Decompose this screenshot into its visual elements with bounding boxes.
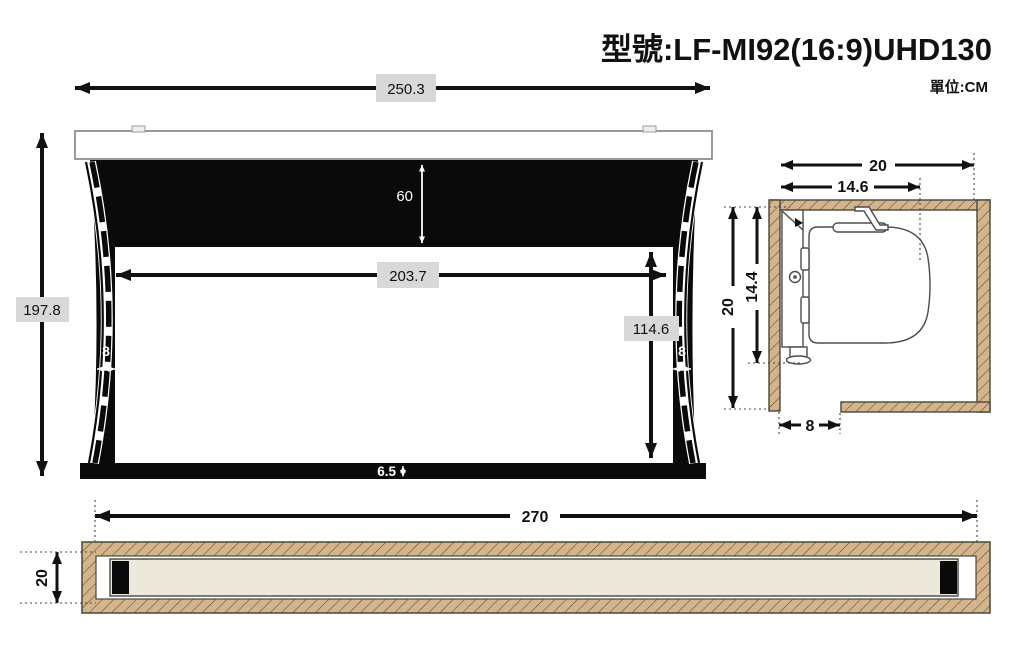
dim-total-width: 250.3: [75, 74, 710, 102]
dim-opening-width-label: 8: [806, 418, 815, 435]
dim-viewing-height-label: 114.6: [633, 321, 669, 338]
recess-wall-right: [977, 200, 990, 412]
mount-tab-left: [132, 126, 145, 132]
dim-recess-depth-label: 20: [34, 569, 51, 587]
dim-recess-height: 20: [720, 207, 742, 408]
dim-recess-width: 20: [781, 155, 974, 175]
side-view: 20 14.6 20 14.4: [720, 153, 990, 435]
front-view: 250.3: [16, 74, 712, 479]
dim-recess-width-label: 20: [869, 158, 887, 175]
dim-opening-width: 8: [779, 416, 840, 435]
screw-center: [793, 275, 797, 279]
dim-bottom-bar-label: 6.5: [377, 464, 396, 479]
screen-mechanism: [782, 207, 930, 364]
bracket-clip-upper: [801, 248, 809, 270]
dim-recess-depth: 20: [34, 552, 57, 603]
dim-total-height-label: 197.8: [23, 302, 61, 319]
dim-device-height-label: 14.4: [744, 271, 761, 302]
dim-device-height: 14.4: [744, 207, 766, 363]
dim-black-drop-label: 60: [396, 188, 413, 205]
dim-viewing-width-label: 203.7: [389, 268, 427, 285]
dim-left-border-label: 8: [102, 343, 110, 359]
roller-body: [809, 227, 930, 343]
dim-total-height: 197.8: [16, 133, 69, 476]
recess-wall-top: [770, 200, 990, 210]
dim-total-width-label: 250.3: [387, 81, 425, 98]
bottom-view: 270 20: [20, 500, 990, 613]
end-cap-right: [940, 561, 957, 594]
mount-tab-right: [643, 126, 656, 132]
bracket-clip-lower: [801, 297, 809, 323]
dim-device-width: 14.6: [781, 178, 920, 196]
screen-housing: [75, 131, 712, 159]
diagram-svg: 250.3: [0, 0, 1024, 654]
dim-device-width-label: 14.6: [837, 179, 868, 196]
dim-right-border-label: 8: [678, 343, 686, 359]
recess-wall-left: [769, 200, 780, 411]
diagram-canvas: 型號:LF-MI92(16:9)UHD130 單位:CM: [0, 0, 1024, 654]
dim-recess-length: 270: [95, 504, 977, 528]
end-cap-left: [112, 561, 129, 594]
screen-casing-top-view: [110, 559, 958, 596]
dim-recess-length-label: 270: [522, 509, 549, 526]
recess-wall-bottom: [841, 402, 990, 412]
dim-recess-height-label: 20: [720, 298, 737, 316]
